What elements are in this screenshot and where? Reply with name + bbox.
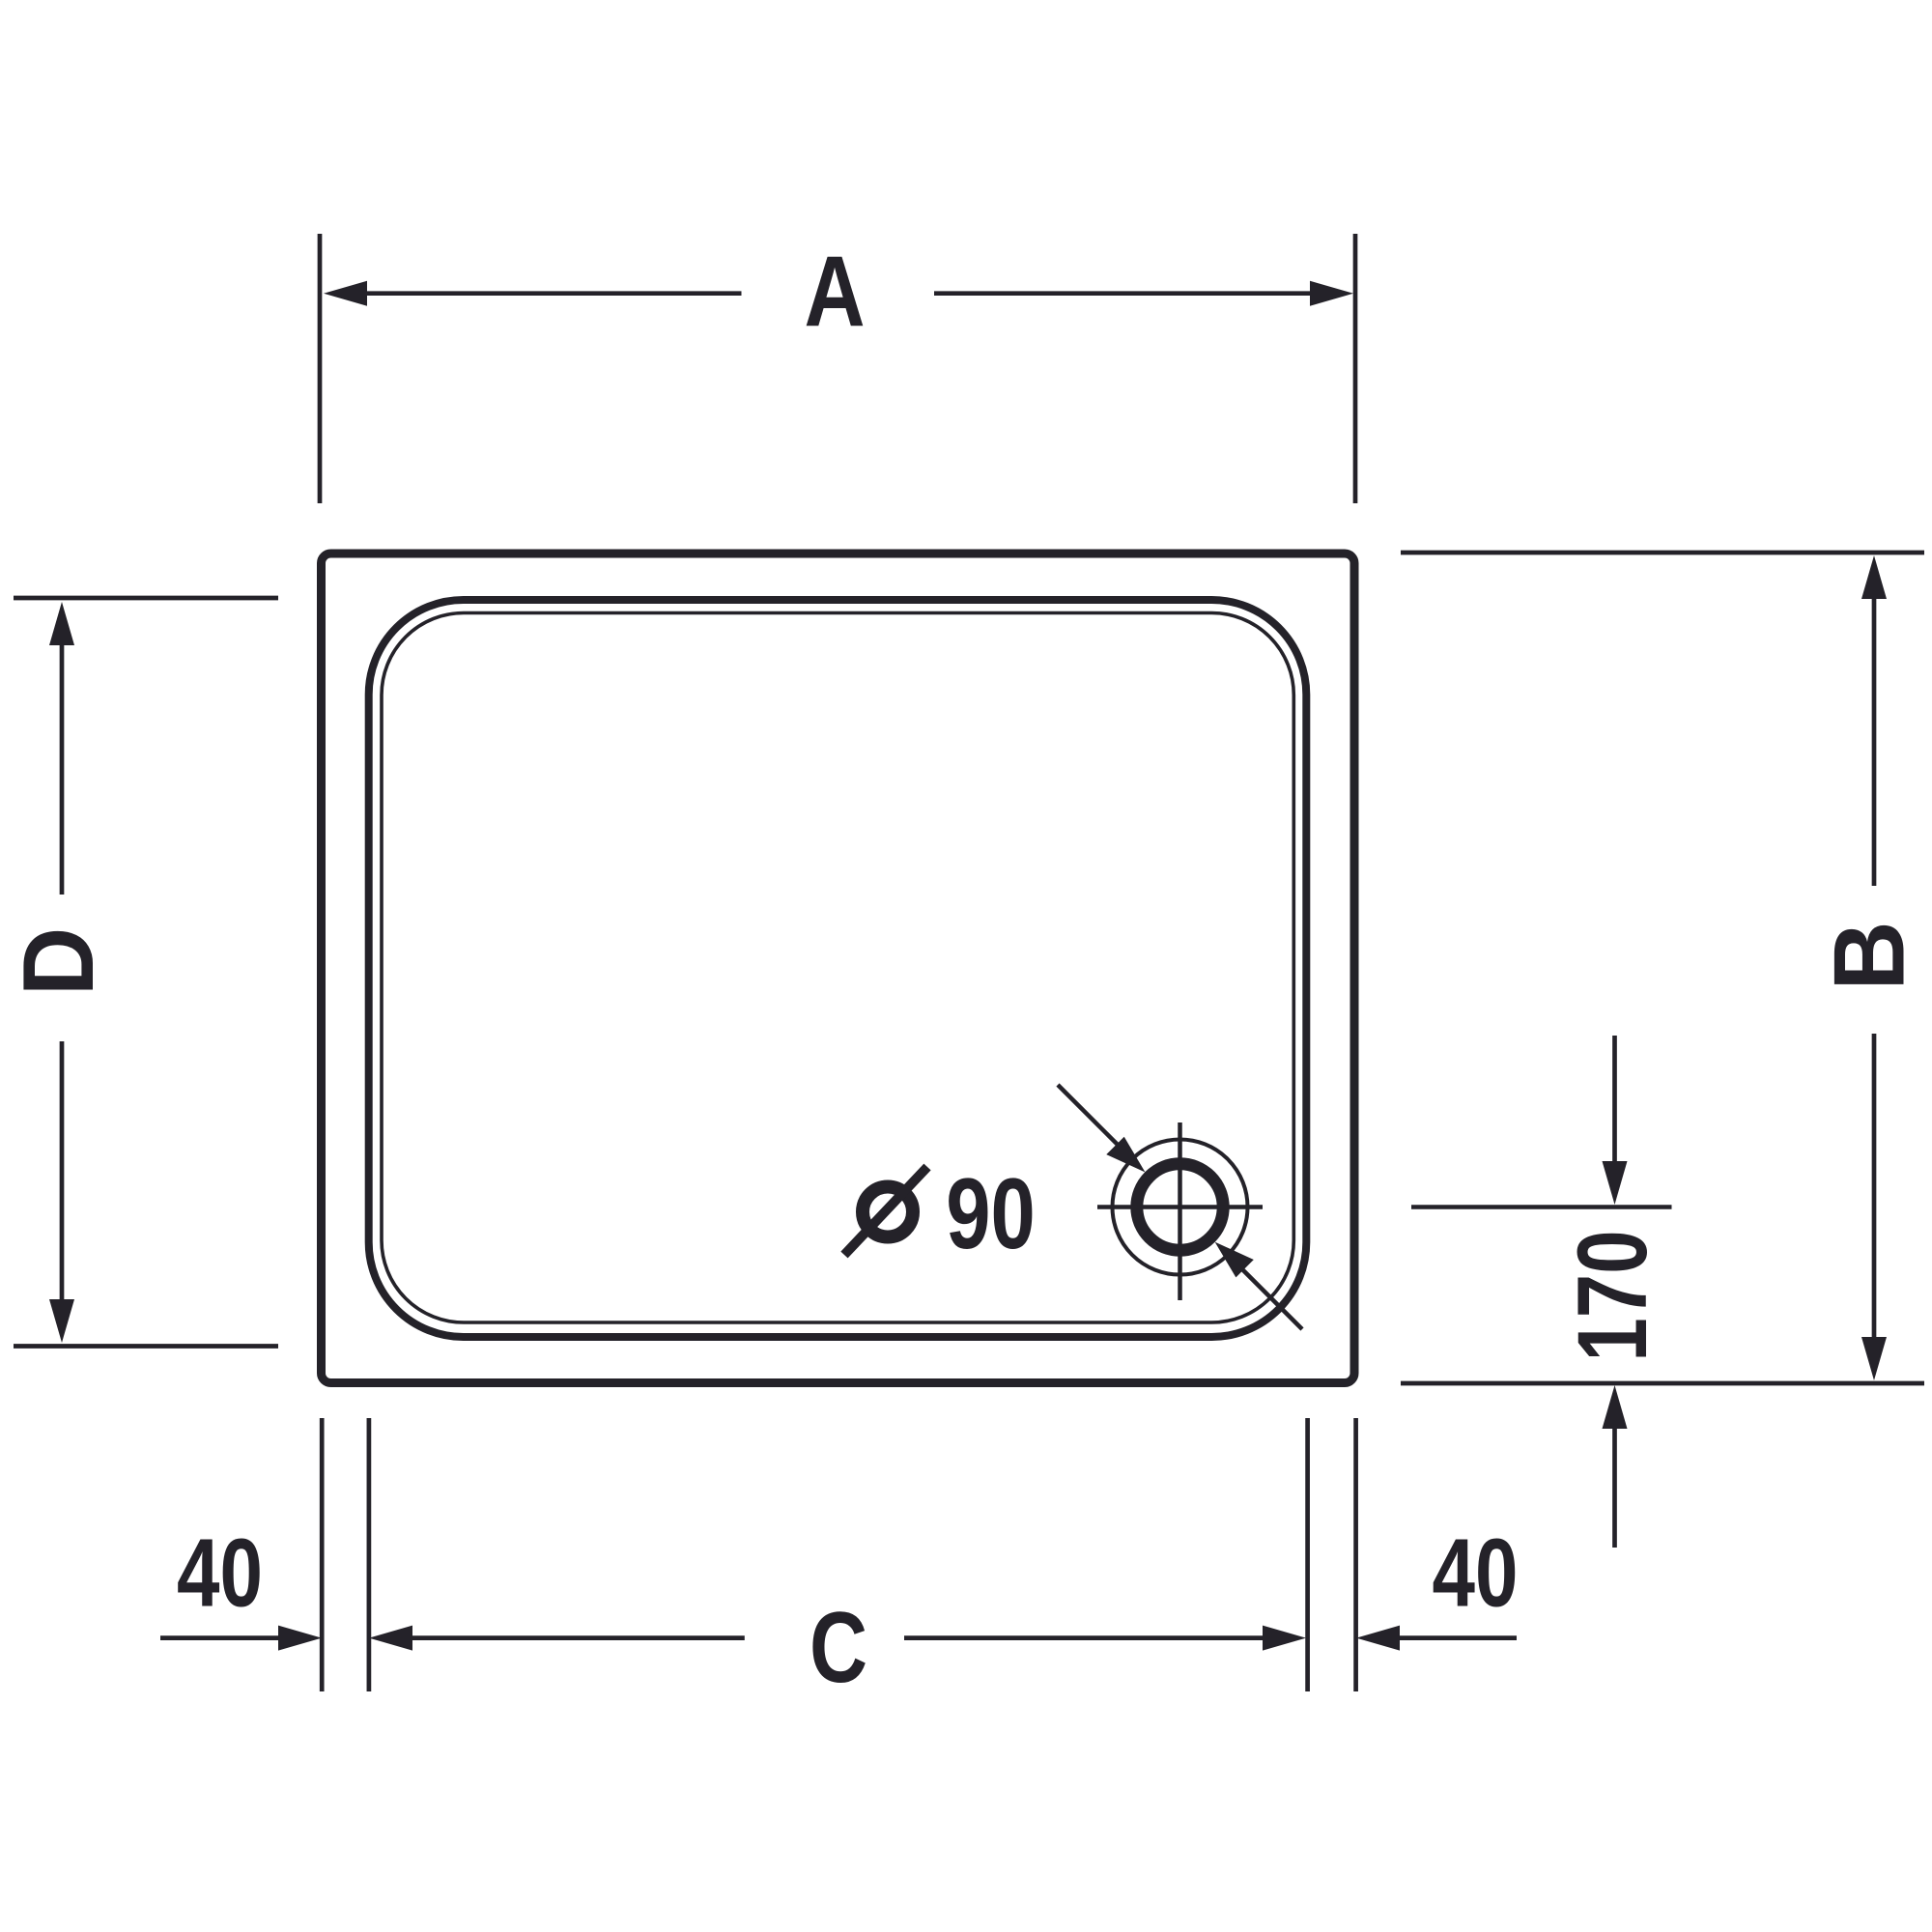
svg-text:40: 40: [1433, 1520, 1519, 1628]
svg-text:A: A: [804, 236, 865, 348]
svg-text:170: 170: [1556, 1230, 1667, 1361]
svg-text:C: C: [810, 1591, 867, 1703]
svg-text:B: B: [1812, 921, 1924, 990]
svg-text:40: 40: [177, 1520, 263, 1628]
svg-text:D: D: [2, 927, 114, 996]
svg-text:90: 90: [946, 1157, 1036, 1269]
